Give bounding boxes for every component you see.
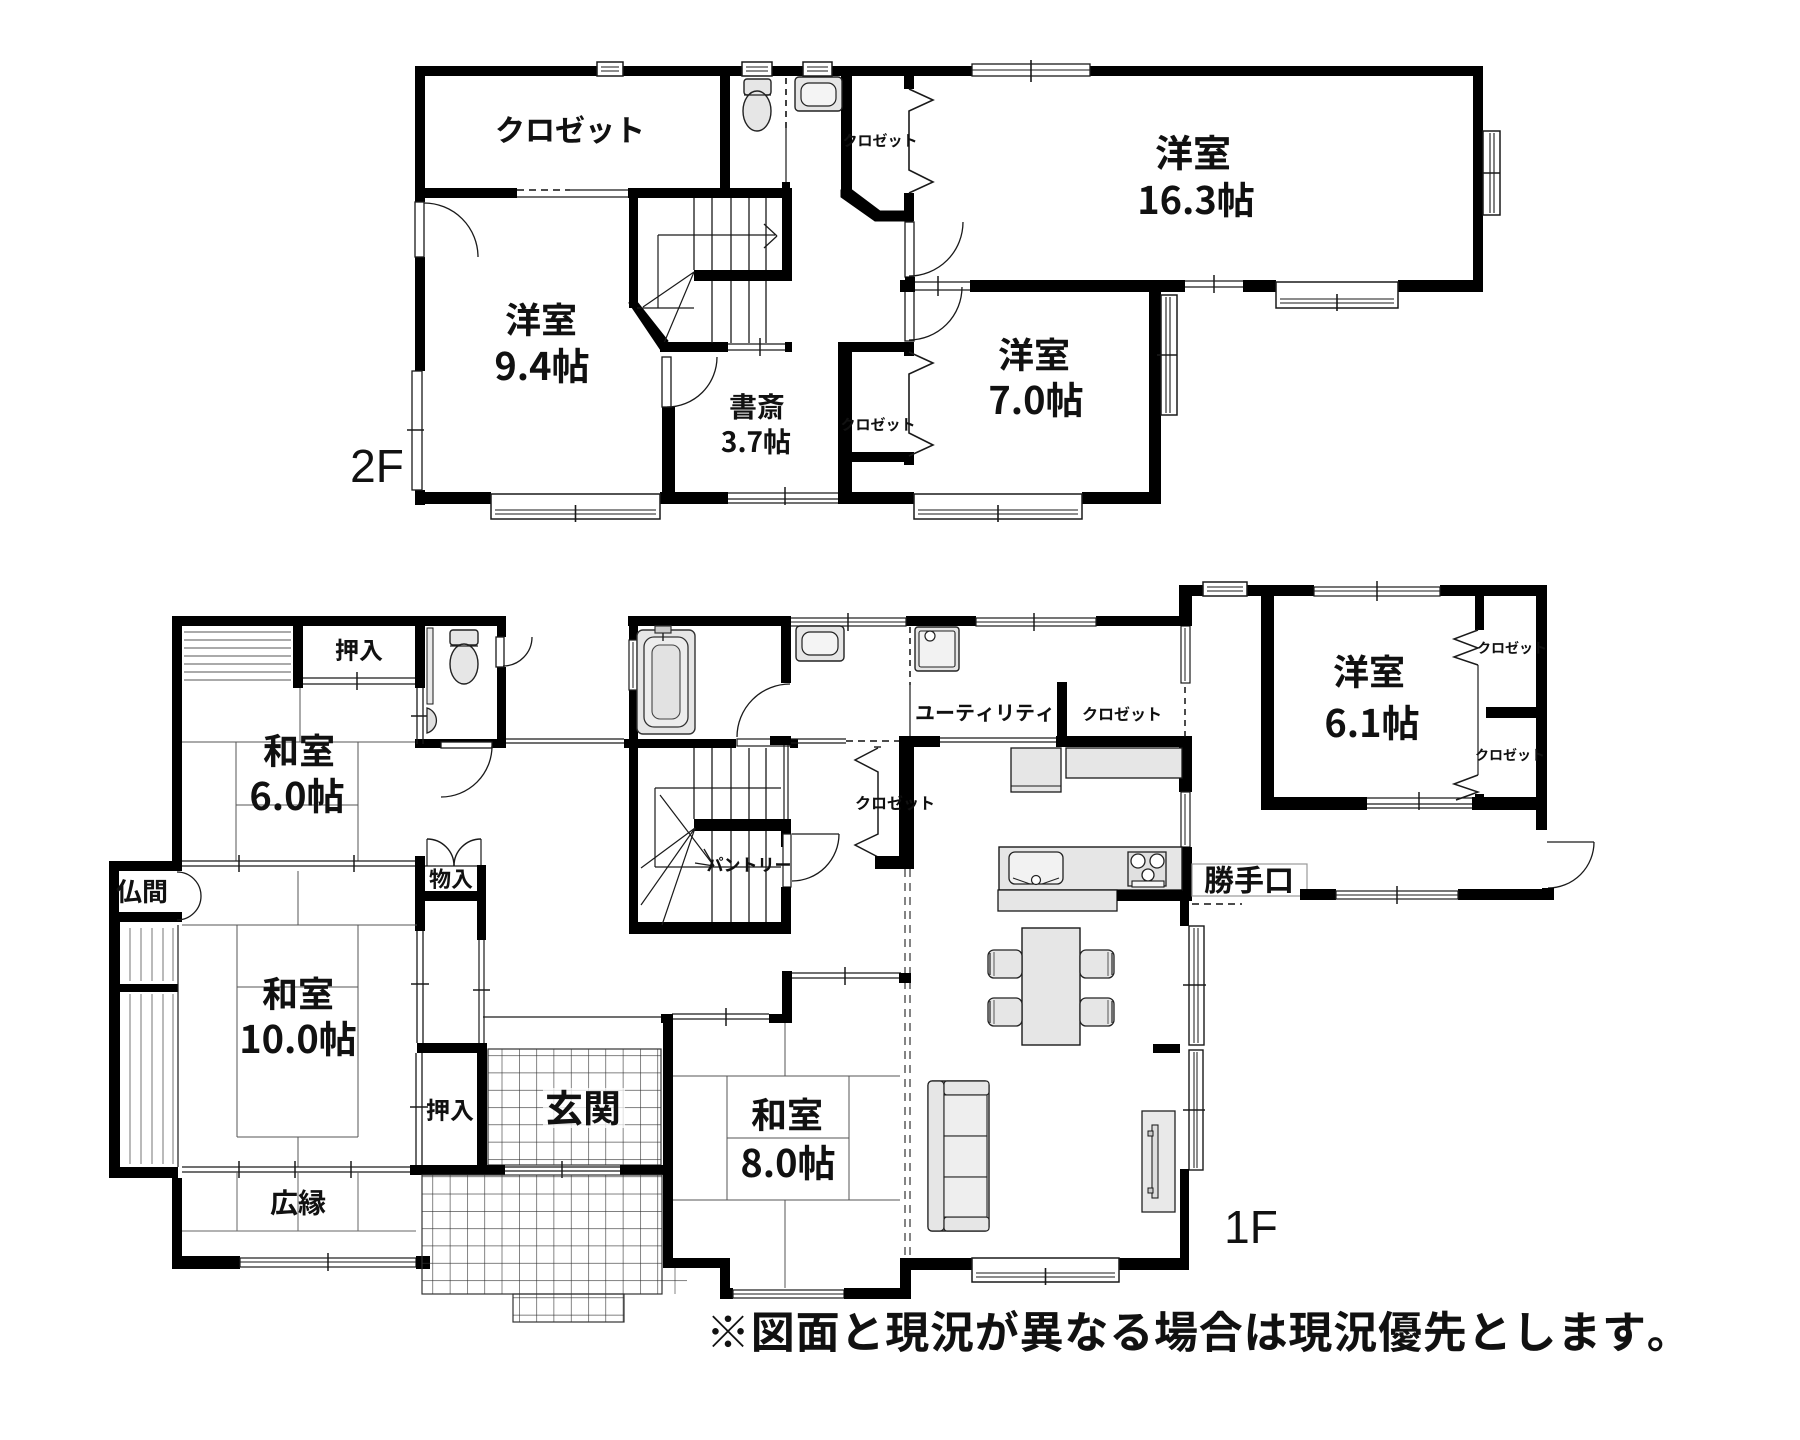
svg-text:押入: 押入 xyxy=(335,631,383,666)
svg-text:1F: 1F xyxy=(1224,1201,1278,1253)
svg-text:クロゼット: クロゼット xyxy=(1477,638,1547,658)
svg-text:2F: 2F xyxy=(350,440,404,492)
svg-text:クロゼット: クロゼット xyxy=(495,106,645,150)
svg-text:9.4帖: 9.4帖 xyxy=(494,336,589,391)
svg-text:ユーティリティ: ユーティリティ xyxy=(915,697,1055,726)
svg-text:7.0帖: 7.0帖 xyxy=(988,370,1083,425)
svg-text:広縁: 広縁 xyxy=(270,1182,326,1222)
svg-text:パントリー: パントリー xyxy=(707,851,792,876)
svg-text:書斎: 書斎 xyxy=(729,386,785,426)
svg-text:クロゼット: クロゼット xyxy=(840,414,915,435)
svg-text:※図面と現況が異なる場合は現況優先とします。: ※図面と現況が異なる場合は現況優先とします。 xyxy=(706,1297,1692,1361)
svg-text:クロゼット: クロゼット xyxy=(855,790,935,814)
svg-text:16.3帖: 16.3帖 xyxy=(1137,170,1255,225)
svg-text:仏間: 仏間 xyxy=(116,872,168,909)
svg-text:玄関: 玄関 xyxy=(545,1078,621,1133)
svg-text:洋室: 洋室 xyxy=(1333,644,1405,696)
svg-text:クロゼット: クロゼット xyxy=(842,130,917,151)
svg-text:物入: 物入 xyxy=(429,862,473,894)
svg-text:クロゼット: クロゼット xyxy=(1475,745,1545,765)
svg-text:3.7帖: 3.7帖 xyxy=(721,421,791,461)
svg-text:6.1帖: 6.1帖 xyxy=(1324,693,1419,748)
svg-text:10.0帖: 10.0帖 xyxy=(239,1009,357,1064)
svg-text:6.0帖: 6.0帖 xyxy=(249,766,344,821)
svg-text:クロゼット: クロゼット xyxy=(1082,701,1162,725)
svg-text:8.0帖: 8.0帖 xyxy=(740,1133,835,1188)
svg-text:押入: 押入 xyxy=(426,1091,474,1126)
svg-text:和室: 和室 xyxy=(751,1087,823,1139)
svg-text:勝手口: 勝手口 xyxy=(1204,856,1294,900)
